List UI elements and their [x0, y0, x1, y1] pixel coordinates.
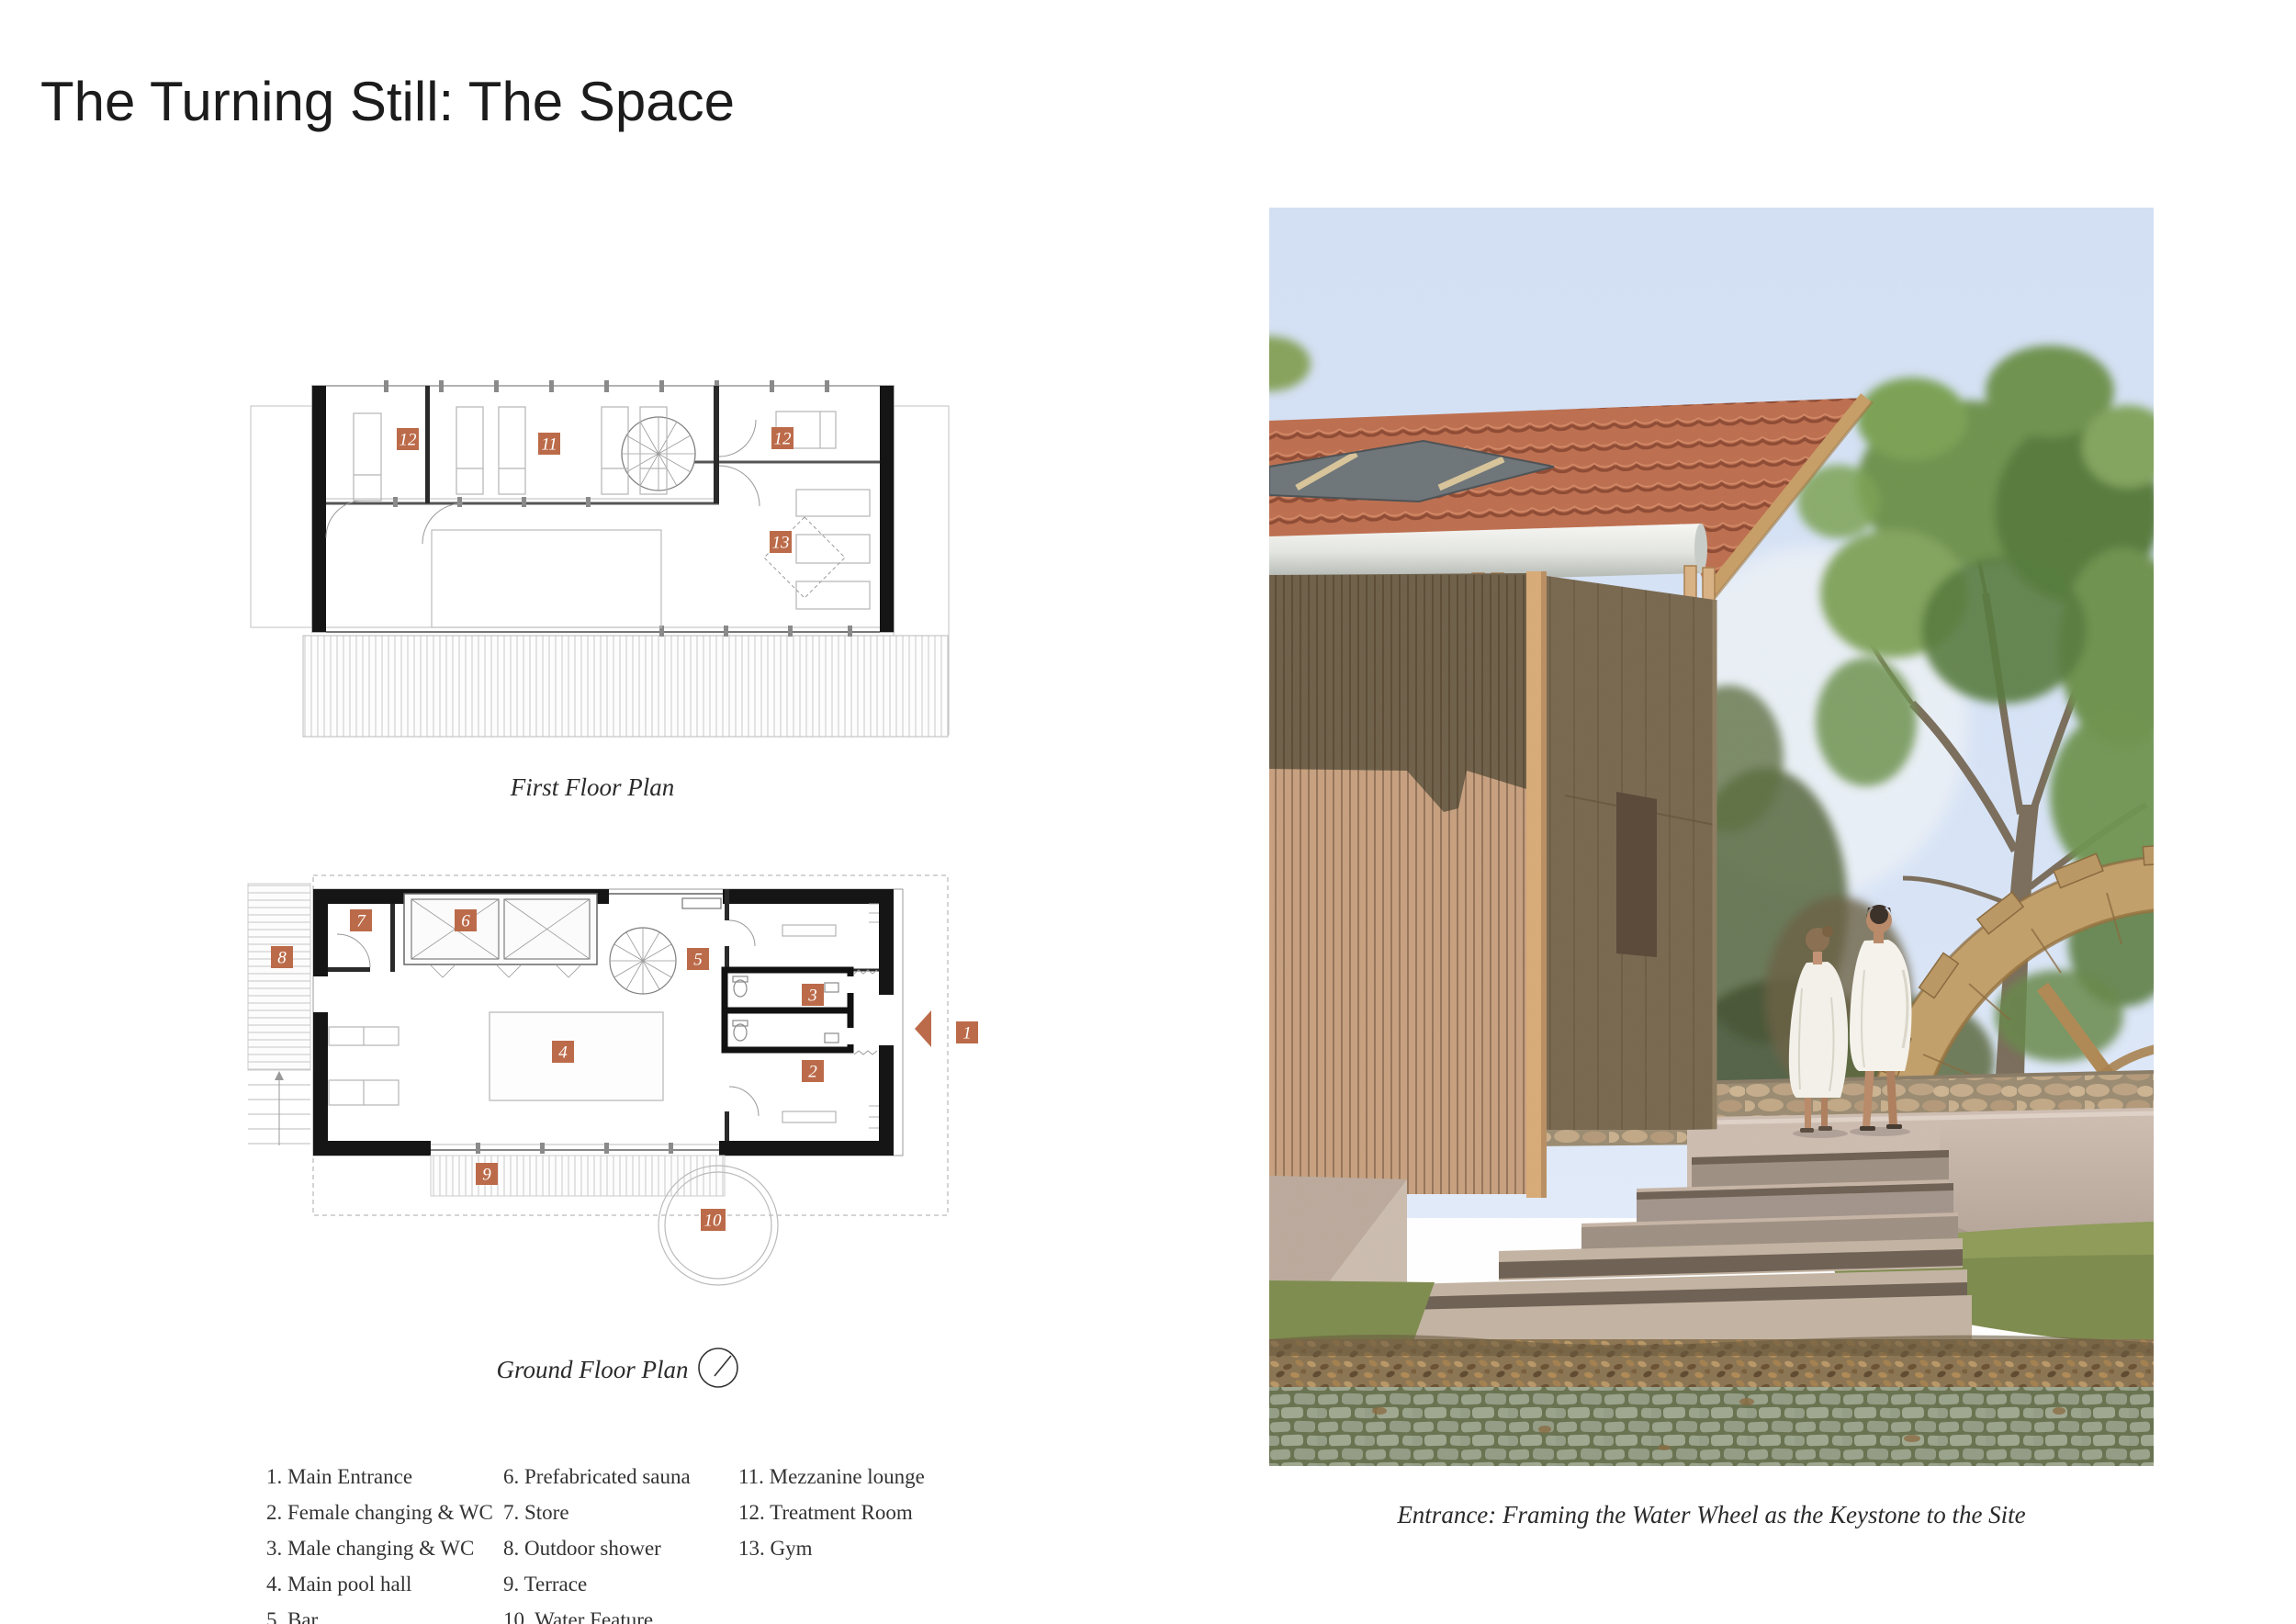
entrance-render-image — [1269, 208, 2154, 1466]
sauna — [404, 894, 597, 977]
legend-item: 7. Store — [503, 1494, 738, 1530]
room-label: 9 — [476, 1163, 498, 1185]
svg-text:9: 9 — [482, 1166, 491, 1185]
wall-partition — [714, 386, 719, 503]
svg-text:6: 6 — [461, 912, 470, 931]
legend-column-2: 6. Prefabricated sauna 7. Store 8. Outdo… — [503, 1459, 738, 1624]
svg-text:12: 12 — [400, 431, 418, 450]
room-label: 11 — [538, 433, 560, 455]
svg-text:10: 10 — [704, 1212, 723, 1231]
legend-column-3: 11. Mezzanine lounge 12. Treatment Room … — [738, 1459, 950, 1624]
ground-floor-plan: 7 6 5 3 2 4 1 8 9 10 — [234, 868, 983, 1401]
svg-text:7: 7 — [356, 912, 366, 931]
left-annex-outline — [251, 406, 312, 627]
legend-column-1: 1. Main Entrance 2. Female changing & WC… — [266, 1459, 503, 1624]
svg-text:8: 8 — [277, 949, 287, 968]
svg-text:13: 13 — [772, 534, 790, 553]
legend-item: 1. Main Entrance — [266, 1459, 503, 1494]
outdoor-shower-area — [248, 884, 310, 1145]
room-label: 7 — [350, 909, 372, 931]
legend-item: 11. Mezzanine lounge — [738, 1459, 950, 1494]
room-label: 6 — [455, 909, 477, 931]
room-label: 12 — [397, 428, 419, 450]
room-label: 3 — [802, 984, 824, 1006]
legend-item: 5. Bar — [266, 1602, 503, 1624]
render-caption: Entrance: Framing the Water Wheel as the… — [1269, 1501, 2154, 1529]
svg-text:3: 3 — [807, 987, 817, 1006]
svg-text:12: 12 — [774, 430, 793, 449]
grain-texture — [1269, 208, 2154, 1466]
entrance-arrow-icon — [915, 1010, 931, 1047]
plan-body — [312, 386, 894, 632]
spiral-stair — [610, 928, 676, 994]
svg-text:11: 11 — [541, 435, 557, 455]
first-floor-caption: First Floor Plan — [409, 773, 776, 802]
legend-item: 10. Water Feature — [503, 1602, 738, 1624]
legend-item: 12. Treatment Room — [738, 1494, 950, 1530]
first-floor-terrace — [303, 636, 948, 737]
svg-text:5: 5 — [693, 951, 703, 970]
legend-item: 3. Male changing & WC — [266, 1530, 503, 1566]
room-label: 8 — [271, 946, 293, 968]
room-label: 13 — [770, 531, 792, 553]
plan-legend: 1. Main Entrance 2. Female changing & WC… — [266, 1459, 950, 1624]
legend-item: 13. Gym — [738, 1530, 950, 1566]
room-label: 4 — [552, 1041, 574, 1063]
legend-item: 4. Main pool hall — [266, 1566, 503, 1602]
legend-item: 2. Female changing & WC — [266, 1494, 503, 1530]
room-label: 10 — [701, 1209, 726, 1231]
presentation-page: The Turning Still: The Space — [0, 0, 2296, 1624]
wall-right — [880, 386, 894, 632]
svg-text:2: 2 — [808, 1063, 817, 1082]
wall-left — [312, 386, 326, 632]
main-pool — [490, 1012, 663, 1100]
legend-item: 8. Outdoor shower — [503, 1530, 738, 1566]
spiral-stair — [622, 417, 695, 491]
room-label: 2 — [802, 1060, 824, 1082]
legend-item: 9. Terrace — [503, 1566, 738, 1602]
room-label: 1 — [956, 1021, 978, 1043]
room-label: 5 — [687, 948, 709, 970]
svg-text:1: 1 — [962, 1024, 972, 1043]
first-floor-plan: 12 11 12 13 — [234, 363, 978, 804]
page-title: The Turning Still: The Space — [40, 70, 735, 133]
room-label: 12 — [771, 427, 793, 449]
ground-floor-caption: Ground Floor Plan — [409, 1356, 776, 1384]
svg-text:4: 4 — [558, 1043, 568, 1063]
legend-item: 6. Prefabricated sauna — [503, 1459, 738, 1494]
ground-terrace — [431, 1156, 725, 1196]
